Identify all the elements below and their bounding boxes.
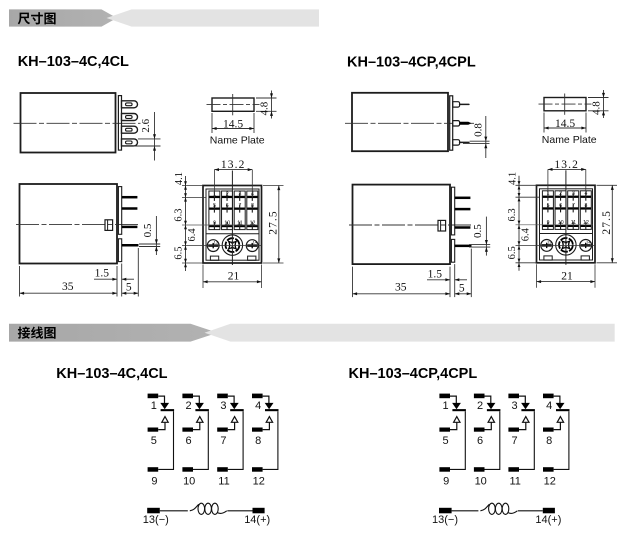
svg-text:7: 7 bbox=[572, 203, 575, 209]
svg-text:1.5: 1.5 bbox=[95, 268, 110, 280]
svg-text:6.5: 6.5 bbox=[174, 246, 185, 259]
svg-text:9: 9 bbox=[547, 220, 550, 226]
svg-text:6.3: 6.3 bbox=[174, 209, 185, 222]
svg-text:2: 2 bbox=[559, 191, 562, 197]
svg-text:14.5: 14.5 bbox=[223, 118, 243, 130]
svg-text:14(+): 14(+) bbox=[535, 514, 561, 526]
svg-text:14.5: 14.5 bbox=[555, 118, 575, 130]
svg-text:1: 1 bbox=[151, 400, 157, 412]
svg-text:14(+): 14(+) bbox=[244, 514, 270, 526]
svg-text:9: 9 bbox=[213, 220, 216, 226]
svg-text:21: 21 bbox=[561, 270, 573, 282]
svg-text:4: 4 bbox=[255, 400, 261, 412]
svg-text:13: 13 bbox=[547, 240, 552, 245]
svg-text:12: 12 bbox=[544, 475, 556, 487]
svg-text:10: 10 bbox=[475, 475, 487, 487]
svg-text:5: 5 bbox=[443, 435, 449, 447]
svg-text:5: 5 bbox=[213, 203, 216, 209]
svg-text:8: 8 bbox=[251, 203, 254, 209]
svg-text:12: 12 bbox=[250, 220, 256, 226]
svg-text:4.1: 4.1 bbox=[507, 172, 518, 185]
svg-text:8: 8 bbox=[255, 435, 261, 447]
svg-text:21: 21 bbox=[228, 271, 240, 283]
svg-text:4.8: 4.8 bbox=[258, 101, 270, 115]
svg-text:35: 35 bbox=[395, 282, 407, 294]
svg-text:2: 2 bbox=[226, 191, 229, 197]
svg-text:6.3: 6.3 bbox=[507, 208, 518, 221]
svg-text:5: 5 bbox=[547, 203, 550, 209]
svg-text:KH–103–4CP,4CPL: KH–103–4CP,4CPL bbox=[347, 55, 476, 71]
svg-text:9: 9 bbox=[151, 475, 157, 487]
svg-text:13(−): 13(−) bbox=[143, 514, 169, 526]
svg-text:14: 14 bbox=[253, 240, 258, 245]
svg-text:6.4: 6.4 bbox=[520, 227, 531, 241]
svg-text:11: 11 bbox=[218, 475, 229, 487]
svg-text:6.5: 6.5 bbox=[507, 246, 518, 259]
svg-text:5: 5 bbox=[459, 282, 465, 294]
svg-text:5: 5 bbox=[126, 282, 132, 294]
svg-text:Name Plate: Name Plate bbox=[210, 134, 265, 146]
svg-text:Name Plate: Name Plate bbox=[542, 134, 597, 146]
svg-text:14: 14 bbox=[586, 240, 591, 245]
svg-text:4.8: 4.8 bbox=[590, 101, 602, 115]
svg-text:2: 2 bbox=[186, 400, 192, 412]
svg-text:6: 6 bbox=[186, 435, 192, 447]
svg-text:3: 3 bbox=[220, 400, 226, 412]
svg-text:13: 13 bbox=[214, 240, 219, 245]
svg-text:6: 6 bbox=[477, 435, 483, 447]
svg-text:KH–103–4CP,4CPL: KH–103–4CP,4CPL bbox=[349, 366, 478, 382]
svg-text:7: 7 bbox=[238, 203, 241, 209]
svg-text:1.5: 1.5 bbox=[428, 268, 443, 280]
svg-text:13.2: 13.2 bbox=[221, 159, 246, 171]
svg-text:13(−): 13(−) bbox=[432, 514, 458, 526]
svg-text:7: 7 bbox=[512, 435, 518, 447]
svg-text:0.5: 0.5 bbox=[142, 223, 154, 237]
svg-text:8: 8 bbox=[546, 435, 552, 447]
svg-text:6: 6 bbox=[226, 203, 229, 209]
svg-text:11: 11 bbox=[571, 220, 576, 226]
svg-text:27.5: 27.5 bbox=[601, 210, 613, 235]
svg-text:3: 3 bbox=[512, 400, 518, 412]
svg-text:7: 7 bbox=[220, 435, 226, 447]
svg-text:8: 8 bbox=[585, 203, 588, 209]
svg-text:0.5: 0.5 bbox=[472, 224, 484, 238]
svg-text:10: 10 bbox=[224, 220, 230, 226]
svg-text:1: 1 bbox=[443, 400, 449, 412]
svg-text:11: 11 bbox=[237, 220, 242, 226]
svg-text:KH–103–4C,4CL: KH–103–4C,4CL bbox=[18, 54, 129, 70]
svg-text:6: 6 bbox=[559, 203, 562, 209]
svg-text:4.1: 4.1 bbox=[174, 172, 185, 185]
svg-text:6.4: 6.4 bbox=[187, 228, 198, 242]
svg-text:5: 5 bbox=[151, 435, 157, 447]
svg-text:10: 10 bbox=[183, 475, 195, 487]
svg-text:4: 4 bbox=[546, 400, 552, 412]
svg-text:3: 3 bbox=[572, 191, 575, 197]
svg-text:13.2: 13.2 bbox=[554, 159, 579, 171]
svg-text:0.8: 0.8 bbox=[472, 123, 484, 137]
svg-text:2: 2 bbox=[477, 400, 483, 412]
svg-text:10: 10 bbox=[558, 220, 564, 226]
svg-text:3: 3 bbox=[238, 191, 241, 197]
svg-text:2.6: 2.6 bbox=[140, 118, 152, 132]
svg-text:11: 11 bbox=[509, 475, 520, 487]
svg-text:27.5: 27.5 bbox=[268, 210, 280, 235]
svg-text:35: 35 bbox=[62, 281, 74, 293]
svg-text:12: 12 bbox=[583, 220, 589, 226]
svg-text:12: 12 bbox=[253, 475, 265, 487]
svg-text:9: 9 bbox=[443, 475, 449, 487]
svg-text:KH–103–4C,4CL: KH–103–4C,4CL bbox=[56, 366, 167, 382]
